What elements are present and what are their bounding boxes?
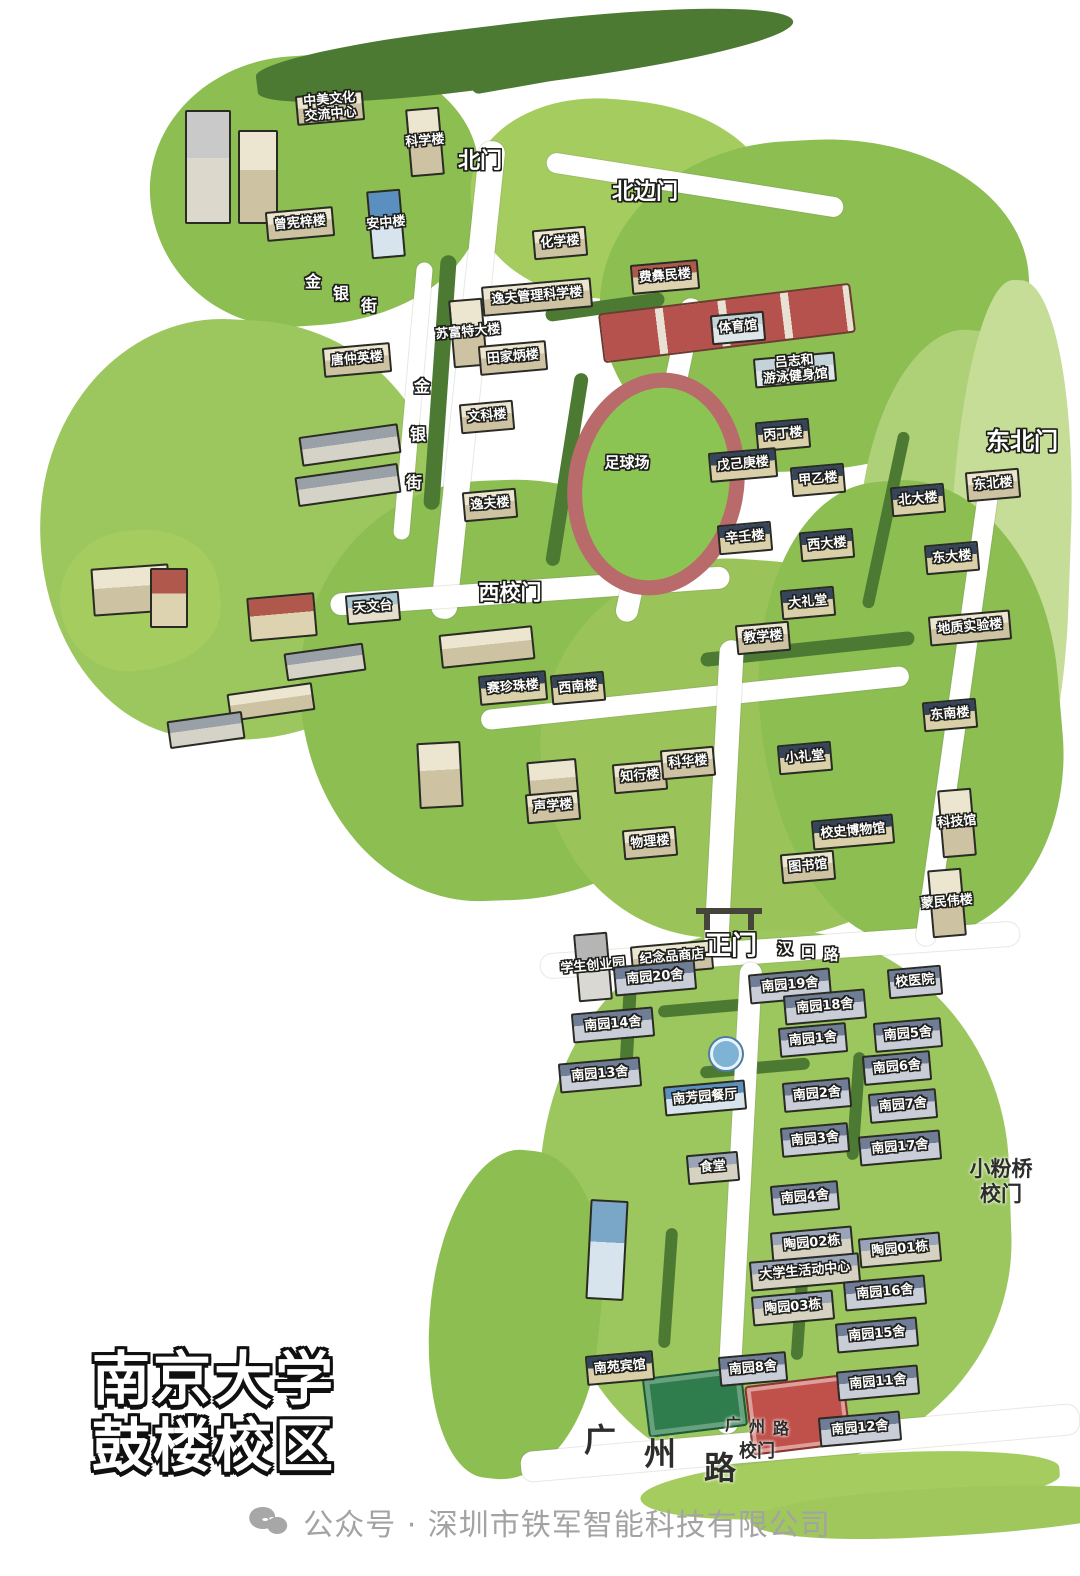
street-name-char: 广 <box>725 1411 741 1435</box>
gate-label: 校门 <box>739 1441 775 1463</box>
building-marker: 西南楼 <box>550 671 606 706</box>
building-marker: 南园8舍 <box>718 1351 788 1387</box>
building-marker: 物理楼 <box>622 826 678 861</box>
gate-label-line1: 西校门 <box>479 580 542 605</box>
building-marker: 学生创业园 <box>573 932 613 1003</box>
street-name-char: 银 <box>333 280 349 304</box>
building-marker: 校医院 <box>887 965 943 1000</box>
building-marker: 化学楼 <box>532 226 588 261</box>
building-marker: 南园6舍 <box>862 1050 932 1086</box>
building-marker: 南苑宾馆 <box>585 1350 655 1386</box>
street-name-char: 路 <box>823 944 838 965</box>
street-name-char: 州 <box>749 1413 765 1437</box>
building-marker: 戊己庚楼 <box>708 447 778 483</box>
building-marker: 甲乙楼 <box>790 463 846 498</box>
filler-building <box>238 130 278 224</box>
building-marker: 中美文化交流中心 <box>295 90 365 126</box>
footer-text: 公众号 · 深圳市铁军智能科技有限公司 <box>303 1500 831 1544</box>
map-title-line1: 南京大学 <box>92 1346 336 1413</box>
building-marker: 西大楼 <box>799 528 855 563</box>
building-label: 中美文化交流中心 <box>303 91 357 125</box>
building-marker: 知行楼 <box>612 760 668 795</box>
building-label: 吕志和游泳健身馆 <box>761 352 828 387</box>
area-label: 足球场 <box>604 452 649 473</box>
building-marker: 费彝民楼 <box>630 259 700 295</box>
building-marker: 文科楼 <box>459 400 515 435</box>
gate-label: 北边门 <box>612 180 678 206</box>
building-marker: 大礼堂 <box>780 586 836 621</box>
street-name-char: 广 <box>584 1415 616 1461</box>
building-marker: 东南楼 <box>922 698 978 733</box>
building-marker: 田家炳楼 <box>478 340 548 376</box>
building-marker: 蒙民伟楼 <box>927 868 967 939</box>
gate-label: 北门 <box>458 149 502 175</box>
building-marker: 唐仲英楼 <box>322 342 392 378</box>
building-marker: 南园3舍 <box>780 1122 850 1158</box>
gate-label-line1: 北边门 <box>612 180 678 206</box>
gate-label: 小粉桥校门 <box>970 1157 1033 1207</box>
gate-label-line1: 校门 <box>739 1441 775 1463</box>
building-marker: 安中楼 <box>366 189 406 260</box>
street-name-char: 金 <box>414 373 430 397</box>
building-marker: 逸夫楼 <box>462 488 518 523</box>
filler-building <box>185 110 231 224</box>
gate-label-line2: 校门 <box>970 1182 1033 1207</box>
building-marker: 图书馆 <box>780 850 836 885</box>
street-name-char: 路 <box>773 1415 789 1439</box>
building-marker: 东北楼 <box>965 468 1021 503</box>
building-marker: 南园2舍 <box>782 1077 852 1113</box>
footer: 公众号 · 深圳市铁军智能科技有限公司 <box>249 1500 831 1544</box>
building-marker: 声学楼 <box>525 790 581 825</box>
building-marker: 赛珍珠楼 <box>478 670 548 706</box>
gate-label: 西校门 <box>479 580 542 605</box>
gate-label-line1: 东北门 <box>986 428 1058 457</box>
building-marker: 天文台 <box>345 591 401 626</box>
street-name-char: 州 <box>644 1429 676 1475</box>
building-marker: 北大楼 <box>890 483 946 518</box>
building-marker: 食堂 <box>686 1151 740 1185</box>
fountain <box>710 1038 742 1070</box>
gate-label-line1: 小粉桥 <box>970 1157 1033 1182</box>
gate-label-line1: 北门 <box>458 149 502 175</box>
street-name-char: 汉 <box>777 938 792 959</box>
building-label: 食堂 <box>699 1159 726 1176</box>
filler-building <box>246 592 318 642</box>
building-marker: 教学楼 <box>735 621 791 656</box>
building-marker: 小礼堂 <box>777 741 833 776</box>
filler-building <box>585 1199 628 1301</box>
street-name-char: 街 <box>406 469 422 493</box>
building-marker: 南园1舍 <box>778 1022 848 1058</box>
building-marker: 东大楼 <box>924 541 980 576</box>
building-marker: 科华楼 <box>660 746 716 781</box>
street-name-char: 口 <box>800 941 815 962</box>
street-name-char: 路 <box>704 1443 736 1489</box>
street-name-char: 金 <box>305 268 321 292</box>
gate-label: 东北门 <box>986 428 1058 457</box>
map-title-line2: 鼓楼校区 <box>92 1413 336 1480</box>
wechat-icon <box>249 1505 291 1539</box>
street-name-char: 银 <box>410 421 426 445</box>
building-marker: 科学楼 <box>405 107 445 178</box>
building-marker: 南园4舍 <box>770 1180 840 1216</box>
building-marker: 曾宪梓楼 <box>265 206 335 242</box>
gate-label-line1: 正门 <box>705 931 757 962</box>
street-name-char: 街 <box>361 292 377 316</box>
building-marker: 南园7舍 <box>868 1088 938 1124</box>
building-label: 苏富特大楼 <box>435 323 501 344</box>
filler-building <box>150 568 188 628</box>
gate-label: 正门 <box>705 931 757 962</box>
building-marker: 科技馆 <box>937 788 977 859</box>
filler-building <box>416 741 463 809</box>
building-marker: 体育馆 <box>710 311 766 346</box>
building-marker: 南园5舍 <box>873 1017 943 1053</box>
campus-map: 南京大学 鼓楼校区 公众号 · 深圳市铁军智能科技有限公司 中美文化交流中心科学… <box>0 0 1080 1576</box>
map-title: 南京大学 鼓楼校区 <box>92 1346 336 1481</box>
main-gate-icon <box>696 908 762 930</box>
building-marker: 辛壬楼 <box>717 521 773 556</box>
